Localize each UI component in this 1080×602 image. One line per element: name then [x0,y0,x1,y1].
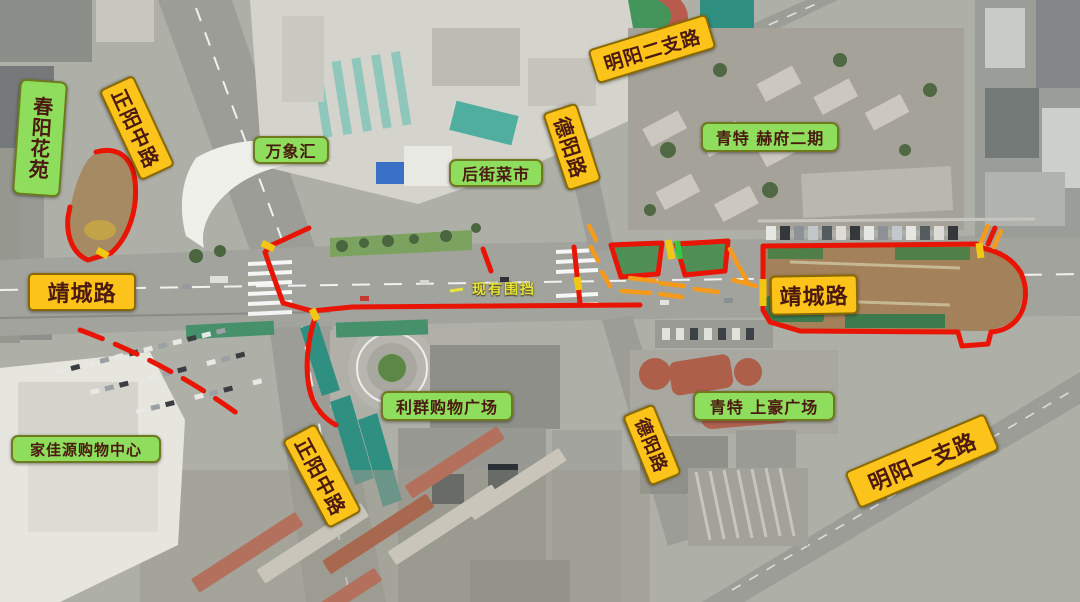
place-label-chunyang-huayuan: 春阳花苑 [12,78,68,197]
road-label-jingcheng-east: 靖城路 [770,274,859,316]
backdrop-city [0,0,1080,602]
place-label-qingte-shanghao: 青特 上豪广场 [693,391,835,421]
existing-enclosure-note: 现有围挡 [472,279,536,299]
annotated-satellite-map: 正阳中路 明阳二支路 德阳路 靖城路 靖城路 正阳中路 德阳路 明阳一支路 春阳… [0,0,1080,602]
place-label-wanxianghui: 万象汇 [253,136,329,164]
map-graphics [0,0,1080,602]
place-label-liqun-plaza: 利群购物广场 [381,391,513,421]
place-label-houjie-market: 后街菜市 [449,159,543,187]
place-label-jiajiayuan: 家佳源购物中心 [11,435,161,463]
place-label-qingte-hefu: 青特 赫府二期 [701,122,839,152]
road-label-jingcheng-west: 靖城路 [28,273,136,311]
